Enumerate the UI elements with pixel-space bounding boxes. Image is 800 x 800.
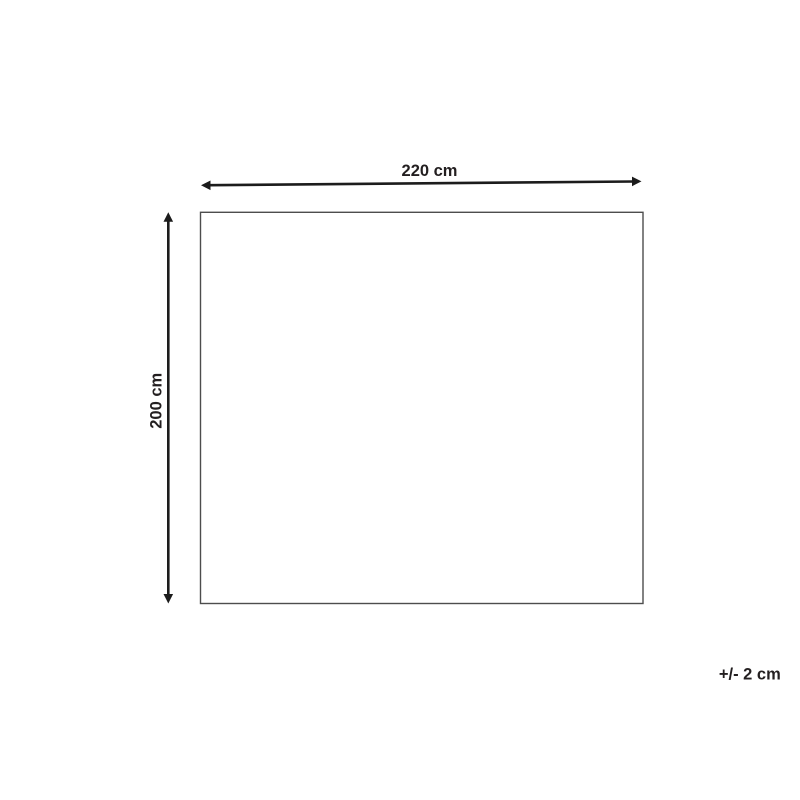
svg-text:220 cm: 220 cm bbox=[402, 162, 458, 180]
svg-text:+/- 2 cm: +/- 2 cm bbox=[719, 665, 781, 683]
svg-text:200 cm: 200 cm bbox=[147, 373, 165, 429]
